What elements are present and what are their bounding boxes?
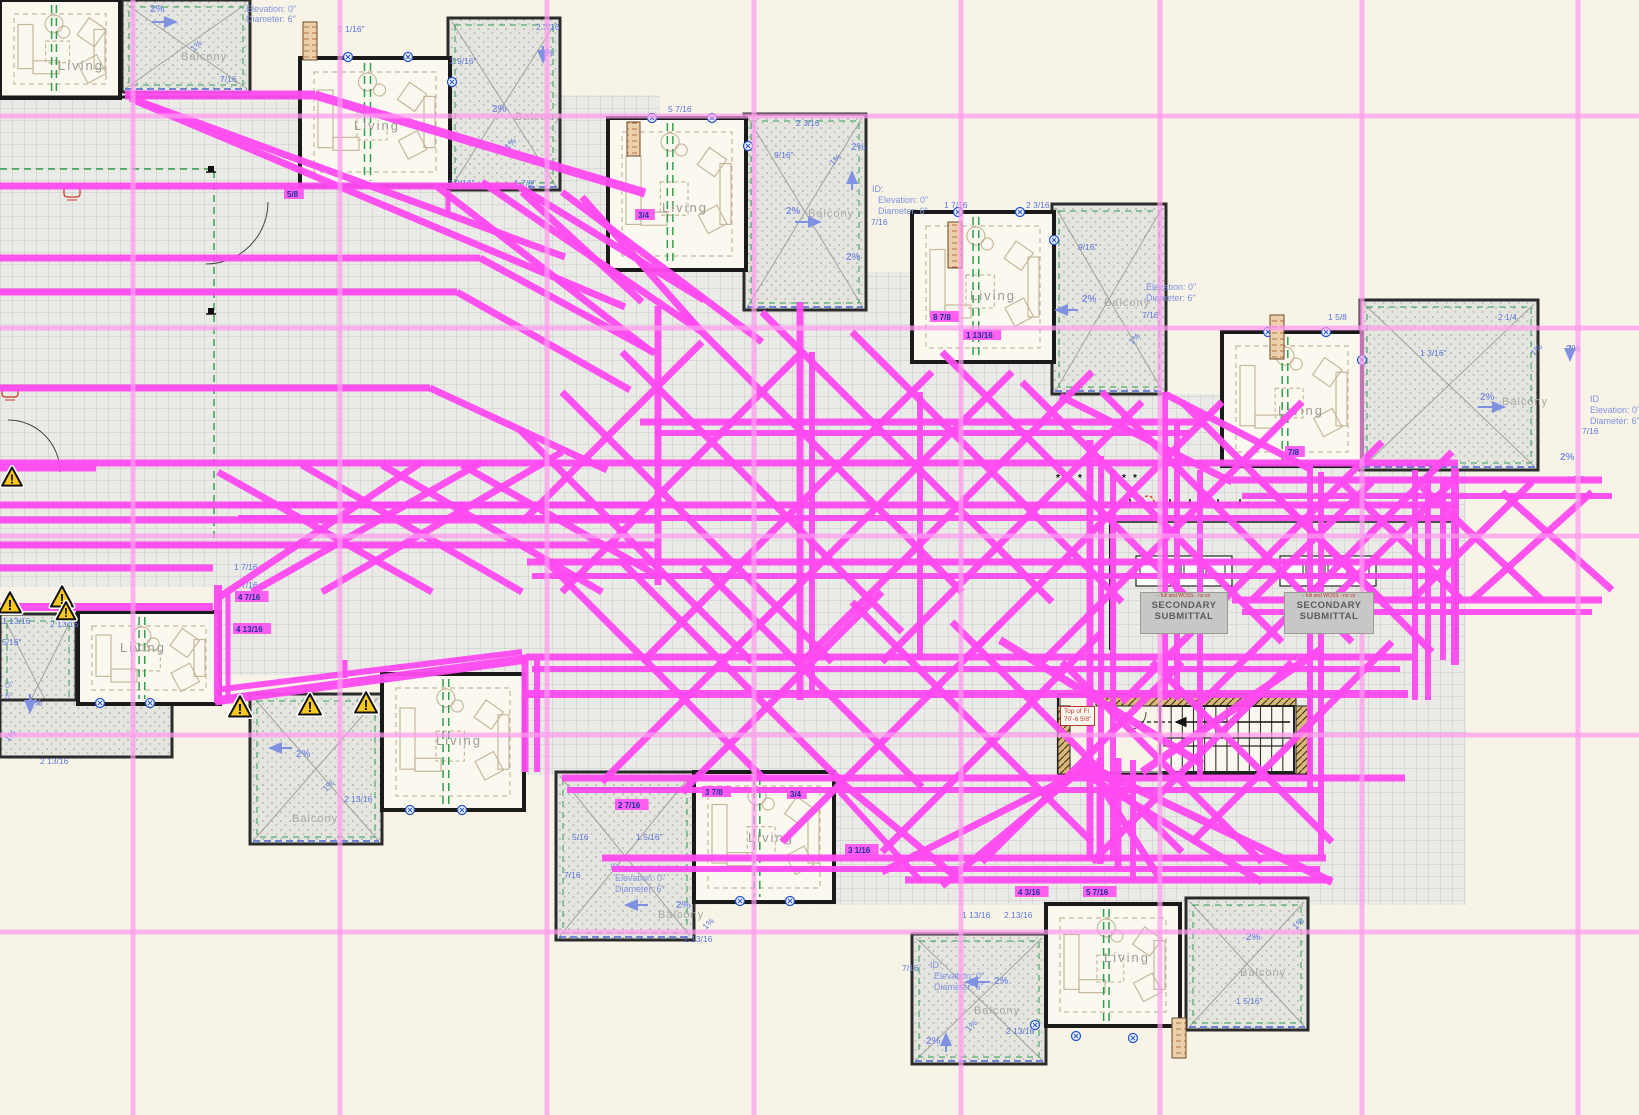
annotation-text: 5/16" bbox=[2, 637, 22, 647]
sprinkler-icon[interactable] bbox=[208, 308, 214, 314]
annotation-text: : 0" bbox=[0, 680, 13, 690]
annotation-text: Balcony bbox=[1104, 297, 1150, 309]
floor-plan-svg: ******** Living2%Balcony7/16Elevation: 0… bbox=[0, 0, 1639, 1115]
annotation-text: 1 5/16" bbox=[636, 832, 663, 842]
annotation-text: : 6" bbox=[0, 691, 13, 701]
annotation-text: 2% bbox=[994, 976, 1009, 987]
pipe-dim-text: 7/8 bbox=[1288, 448, 1300, 457]
annotation-text: Balcony bbox=[658, 909, 704, 921]
annotation-text: Living bbox=[970, 288, 1016, 303]
annotation-text: Living bbox=[58, 58, 104, 73]
annotation-text: 1 13/16 bbox=[2, 616, 31, 626]
pipe-dim-text: 3/4 bbox=[638, 211, 650, 220]
annotation-text: 1 3/16" bbox=[1420, 348, 1447, 358]
annotation-text: 2 13/16 bbox=[684, 934, 713, 944]
floor-plan-canvas: ******** Living2%Balcony7/16Elevation: 0… bbox=[0, 0, 1639, 1115]
svg-text:!: ! bbox=[64, 606, 68, 620]
annotation-text: 2 3/16 bbox=[1026, 200, 1050, 210]
annotation-text: 7/16 bbox=[871, 217, 888, 227]
annotation-text: Balcony bbox=[1502, 396, 1548, 408]
annotation-text: Living bbox=[662, 200, 708, 215]
pipe-dim-text: 4 13/16 bbox=[236, 625, 263, 634]
annotation-text: 2 9/16" bbox=[450, 56, 477, 66]
annotation-text: 9/16" bbox=[774, 150, 794, 160]
pipe-dim-text: 1 13/16 bbox=[966, 331, 993, 340]
annotation-text: Diameter: 6" bbox=[615, 884, 665, 894]
annotation-text: Elevation: 0" bbox=[1590, 405, 1639, 415]
annotation-text: 5 7/16 bbox=[668, 104, 692, 114]
annotation-text: 2% bbox=[1560, 452, 1575, 463]
annotation-text: ID: bbox=[872, 184, 884, 194]
sprinkler-icon[interactable] bbox=[208, 166, 214, 172]
annotation-text: 2 1/4 bbox=[1498, 312, 1517, 322]
stamp-line1: SECONDARY bbox=[1141, 600, 1227, 611]
annotation-text: ID bbox=[1590, 394, 1600, 404]
svg-text:!: ! bbox=[364, 698, 369, 714]
annotation-text: 2% bbox=[851, 142, 866, 153]
annotation-text: 2 13/16 bbox=[1006, 1026, 1035, 1036]
pipe-dim-text: 3 7/8 bbox=[705, 788, 723, 797]
annotation-text: 2 13/16 bbox=[1004, 910, 1033, 920]
secondary-submittal-stamp: - full and WOSS - no co SECONDARY SUBMIT… bbox=[1140, 592, 1228, 634]
annotation-text: 7/16 bbox=[220, 74, 237, 84]
stamp-caption: - full and WOSS - no co bbox=[1141, 593, 1227, 600]
pipe-dim-text: 3/4 bbox=[790, 790, 802, 799]
annotation-text: 2% bbox=[786, 206, 801, 217]
svg-text:!: ! bbox=[8, 598, 13, 614]
pipe-dim-text: 4 3/16 bbox=[1018, 888, 1041, 897]
annotation-text: 7/16 bbox=[902, 963, 919, 973]
annotation-text: 2 13/16 bbox=[40, 756, 69, 766]
annotation-text: Elevation: 0" bbox=[246, 4, 296, 14]
label-line2: 70'-6 5/8" bbox=[1064, 716, 1091, 724]
label-line1: Top of Fl bbox=[1064, 708, 1091, 716]
pipe-dim-text: 5/8 bbox=[287, 190, 299, 199]
annotation-text: Elevation: 0" bbox=[1146, 282, 1196, 292]
annotation-text: 5/16 bbox=[572, 832, 589, 842]
annotation-text: 2% bbox=[926, 1036, 941, 1047]
stamp-caption: - full and WOSS - no co bbox=[1285, 593, 1373, 600]
pipe-dim-text: 8 7/8 bbox=[933, 313, 951, 322]
wall-pier bbox=[627, 122, 640, 156]
wall-pier bbox=[1172, 1018, 1186, 1058]
annotation-text: 2% bbox=[1480, 392, 1495, 403]
annotation-text: 7/16 bbox=[564, 870, 581, 880]
fixture-mark: * bbox=[1078, 473, 1082, 484]
annotation-text: 1 5/8 bbox=[1328, 312, 1347, 322]
pipe-dim-text: 5 7/16 bbox=[1086, 888, 1109, 897]
fixture-mark: * bbox=[1133, 473, 1137, 484]
annotation-text: Elevation: 0" bbox=[615, 873, 665, 883]
top-of-floor-label: Top of Fl 70'-6 5/8" bbox=[1060, 706, 1095, 726]
annotation-text: 2% bbox=[296, 749, 311, 760]
annotation-text: 2% bbox=[492, 104, 507, 115]
annotation-text: Diameter: 6" bbox=[1146, 293, 1196, 303]
unit-j[interactable] bbox=[1186, 898, 1308, 1030]
annotation-text: 2% bbox=[1082, 294, 1097, 305]
svg-text:!: ! bbox=[10, 471, 14, 486]
annotation-text: Living bbox=[120, 640, 166, 655]
annotation-text: Diameter: 6" bbox=[1590, 416, 1639, 426]
stamp-line2: SUBMITTAL bbox=[1285, 611, 1373, 622]
pipe-dim-text: 4 7/16 bbox=[238, 593, 261, 602]
pipe-dim-text: 2 7/16 bbox=[618, 801, 641, 810]
annotation-text: Balcony bbox=[974, 1005, 1020, 1017]
wall-pier bbox=[1270, 315, 1284, 359]
secondary-submittal-stamp: - full and WOSS - no co SECONDARY SUBMIT… bbox=[1284, 592, 1374, 634]
wall-pier bbox=[303, 22, 317, 60]
annotation-text: 7/16 bbox=[1142, 310, 1159, 320]
balcony-area[interactable] bbox=[0, 700, 172, 757]
annotation-text: Diameter: 6" bbox=[878, 206, 928, 216]
annotation-text: 2 13/16 bbox=[344, 794, 373, 804]
annotation-text: Balcony bbox=[181, 51, 227, 63]
stamp-line1: SECONDARY bbox=[1285, 600, 1373, 611]
pipe-dim-text: 3 1/16 bbox=[848, 846, 871, 855]
annotation-text: 1 7/16 bbox=[944, 200, 968, 210]
stamp-line2: SUBMITTAL bbox=[1141, 611, 1227, 622]
annotation-text: Living bbox=[1104, 950, 1150, 965]
annotation-text: 2% bbox=[150, 4, 165, 15]
annotation-text: 1 13/16 bbox=[962, 910, 991, 920]
unit-a[interactable] bbox=[0, 0, 250, 98]
annotation-text: 9/16" bbox=[1078, 242, 1098, 252]
annotation-text: 7/16 bbox=[1582, 426, 1599, 436]
annotation-text: Diameter: 6" bbox=[246, 14, 296, 24]
annotation-text: ID: bbox=[930, 960, 942, 970]
annotation-text: Balcony bbox=[1240, 967, 1286, 979]
annotation-text: 2 3/16 bbox=[796, 118, 820, 128]
annotation-text: 2% bbox=[846, 252, 861, 263]
annotation-text: Balcony bbox=[292, 813, 338, 825]
annotation-text: Balcony bbox=[808, 208, 854, 220]
living-room[interactable] bbox=[1222, 332, 1362, 466]
annotation-text: 1 5/16" bbox=[1236, 996, 1263, 1006]
annotation-text: Elevation: 0" bbox=[878, 195, 928, 205]
svg-text:!: ! bbox=[238, 702, 243, 718]
svg-text:!: ! bbox=[308, 700, 313, 716]
